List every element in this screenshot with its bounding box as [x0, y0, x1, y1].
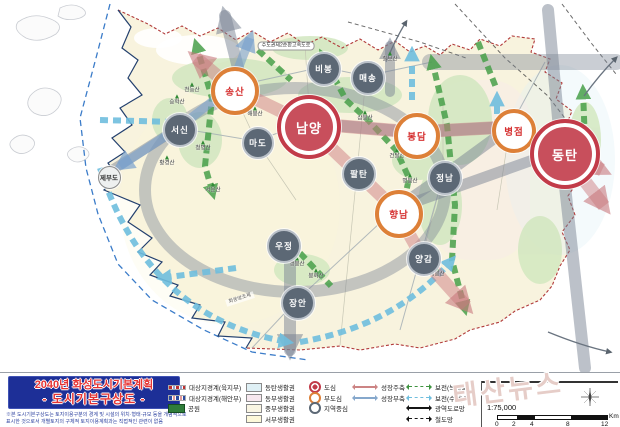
city-label: 병점 [496, 113, 532, 149]
legend-symbol [406, 384, 432, 391]
legend-label: 광역도로망 [435, 403, 465, 413]
legend-label: 중부생활권 [265, 403, 295, 413]
mountain-marker: ▲승학산 [160, 95, 194, 106]
city-node-region: 장안 [281, 286, 315, 320]
legend-label: 도심 [324, 382, 336, 392]
city-label: 남양 [285, 103, 333, 151]
city-node-budosim: 병점 [492, 109, 536, 153]
scale-ratio: 1:75,000 [487, 403, 516, 412]
scale-tick: 12 [601, 421, 608, 427]
map-title: 2040년 화성도시기본계획 [9, 379, 179, 392]
legend-symbol [168, 404, 185, 413]
legend-symbol [246, 404, 262, 413]
legend-symbol [352, 384, 378, 391]
map-art [0, 0, 620, 372]
legend-col-zones: 동탄생활권동부생활권중부생활권서부생활권 [246, 382, 295, 424]
city-node-region: 우정 [267, 229, 301, 263]
legend-label: 철도망 [435, 414, 453, 424]
legend-label: 보전(녹지축) [435, 382, 469, 392]
legend-label: 동탄생활권 [265, 382, 295, 392]
city-label: 정남 [430, 163, 460, 193]
mountain-label: 봉화산 [299, 275, 333, 280]
legend-col-axes1: 성장주축성장부축 [352, 382, 405, 403]
legend-item: 성장주축 [352, 382, 405, 393]
compass-icon [580, 387, 600, 407]
legend-label: 지역중심 [324, 403, 348, 413]
city-node-dosim: 동탄 [530, 119, 600, 189]
scale-bar [497, 415, 608, 420]
city-label: 우정 [269, 231, 299, 261]
legend-item: 대상지경계(육지부) [168, 382, 241, 393]
mountain-label: 칠보산 [373, 58, 407, 63]
mountain-marker: ▲삼봉산 [348, 111, 382, 122]
mountain-label: 황경산 [150, 162, 184, 167]
legend-symbol [352, 394, 378, 401]
legend-symbol [168, 385, 186, 391]
legend-label: 대상지경계(해안부) [189, 393, 241, 403]
legend-label: 공원 [188, 403, 200, 413]
legend-symbol [309, 402, 321, 414]
city-label: 장안 [283, 288, 313, 318]
city-label: 마도 [244, 129, 272, 157]
mountain-label: 앵봉산 [280, 263, 314, 268]
city-node-minor: 제부도 [98, 166, 121, 189]
legend-divider [481, 381, 482, 427]
legend-item: 공원 [168, 403, 241, 414]
legend-item: 지역중심 [309, 403, 348, 414]
title-box: 2040년 화성도시기본계획 - 도시기본구상도 - [8, 376, 180, 409]
disclaimer-text: ※본 도시기본구상도는 토지이용구분의 경계 및 시설의 위치·형태·규모 등을… [6, 412, 188, 425]
legend-item: 서부생활권 [246, 414, 295, 425]
city-label: 팔탄 [344, 159, 374, 189]
city-node-budosim: 향남 [375, 190, 423, 238]
mountain-label: 천등산 [175, 89, 209, 94]
legend-col-axes2: 보전(녹지축)보전(수변)축광역도로망철도망 [406, 382, 469, 424]
mountain-marker: ▲황경산 [150, 156, 184, 167]
legend-item: 성장부축 [352, 393, 405, 404]
mountain-label: 서운산 [196, 189, 230, 194]
legend-item: 대상지경계(해안부) [168, 393, 241, 404]
legend-symbol [406, 394, 432, 401]
legend-label: 보전(수변)축 [435, 393, 469, 403]
legend-item: 광역도로망 [406, 403, 469, 414]
mountain-marker: ▲봉화산 [299, 269, 333, 280]
mountain-marker: ▲천등산 [175, 83, 209, 94]
legend-label: 동부생활권 [265, 393, 295, 403]
legend-symbol [246, 383, 262, 392]
scale-tick: 4 [530, 421, 534, 427]
sea-islands [10, 5, 89, 162]
legend-col-centers: 도심부도심지역중심 [309, 382, 348, 414]
city-label: 봉담 [398, 117, 436, 155]
city-node-budosim: 봉담 [394, 113, 440, 159]
legend-symbol [246, 415, 262, 424]
city-label: 서신 [165, 115, 195, 145]
legend-item: 동탄생활권 [246, 382, 295, 393]
legend-item: 도심 [309, 382, 348, 393]
legend-item: 동부생활권 [246, 393, 295, 404]
city-node-dosim: 남양 [277, 95, 341, 159]
mountain-marker: ▲서운산 [196, 183, 230, 194]
city-node-region: 서신 [163, 113, 197, 147]
legend-item: 보전(녹지축) [406, 382, 469, 393]
legend-symbol [246, 394, 262, 403]
city-node-region: 팔탄 [342, 157, 376, 191]
legend-col-boundary: 대상지경계(육지부)대상지경계(해안부)공원 [168, 382, 241, 414]
city-label: 비봉 [309, 54, 339, 84]
scale-tick: 2 [512, 421, 516, 427]
legend-item: 철도망 [406, 414, 469, 425]
legend-label: 성장부축 [381, 393, 405, 403]
legend-symbol [168, 395, 186, 401]
city-node-region: 정남 [428, 161, 462, 195]
city-label: 향남 [379, 194, 419, 234]
mountain-label: 청명산 [186, 147, 220, 152]
scale-divider-line [481, 381, 618, 383]
city-label: 매송 [353, 63, 383, 93]
screenshot: ▲천등산▲승학산▲해봉산▲삼봉산▲청명산▲황경산▲서운산▲칠보산▲건달산▲명봉산… [0, 0, 620, 427]
city-node-region: 매송 [351, 61, 385, 95]
city-node-region: 마도 [242, 127, 274, 159]
mountain-label: 승학산 [160, 101, 194, 106]
city-label: 양감 [409, 244, 439, 274]
city-label: 제부도 [99, 167, 120, 188]
scale-unit: Km [609, 413, 619, 420]
legend-symbol [406, 415, 432, 422]
legend-item: 보전(수변)축 [406, 393, 469, 404]
legend-symbol [406, 405, 432, 412]
map-subtitle: - 도시기본구상도 - [9, 392, 179, 406]
city-node-budosim: 송산 [211, 67, 259, 115]
legend-label: 성장주축 [381, 382, 405, 392]
mountain-marker: ▲명봉산 [393, 174, 427, 185]
city-label: 동탄 [538, 127, 592, 181]
scale-tick: 0 [495, 421, 499, 427]
map-canvas: ▲천등산▲승학산▲해봉산▲삼봉산▲청명산▲황경산▲서운산▲칠보산▲건달산▲명봉산… [0, 0, 620, 372]
scale-tick: 8 [566, 421, 570, 427]
legend-label: 대상지경계(육지부) [189, 382, 241, 392]
legend-bar: 2040년 화성도시기본계획 - 도시기본구상도 - ※본 도시기본구상도는 토… [0, 372, 620, 427]
legend-item: 중부생활권 [246, 403, 295, 414]
legend-label: 부도심 [324, 393, 342, 403]
map-text-label: 수도권제2순환고속도로 [258, 42, 315, 51]
mountain-label: 명봉산 [393, 180, 427, 185]
mountain-marker: ▲칠보산 [373, 52, 407, 63]
city-node-region: 양감 [407, 242, 441, 276]
city-label: 송산 [215, 71, 255, 111]
legend-label: 서부생활권 [265, 414, 295, 424]
mountain-label: 삼봉산 [348, 117, 382, 122]
city-node-region: 비봉 [307, 52, 341, 86]
